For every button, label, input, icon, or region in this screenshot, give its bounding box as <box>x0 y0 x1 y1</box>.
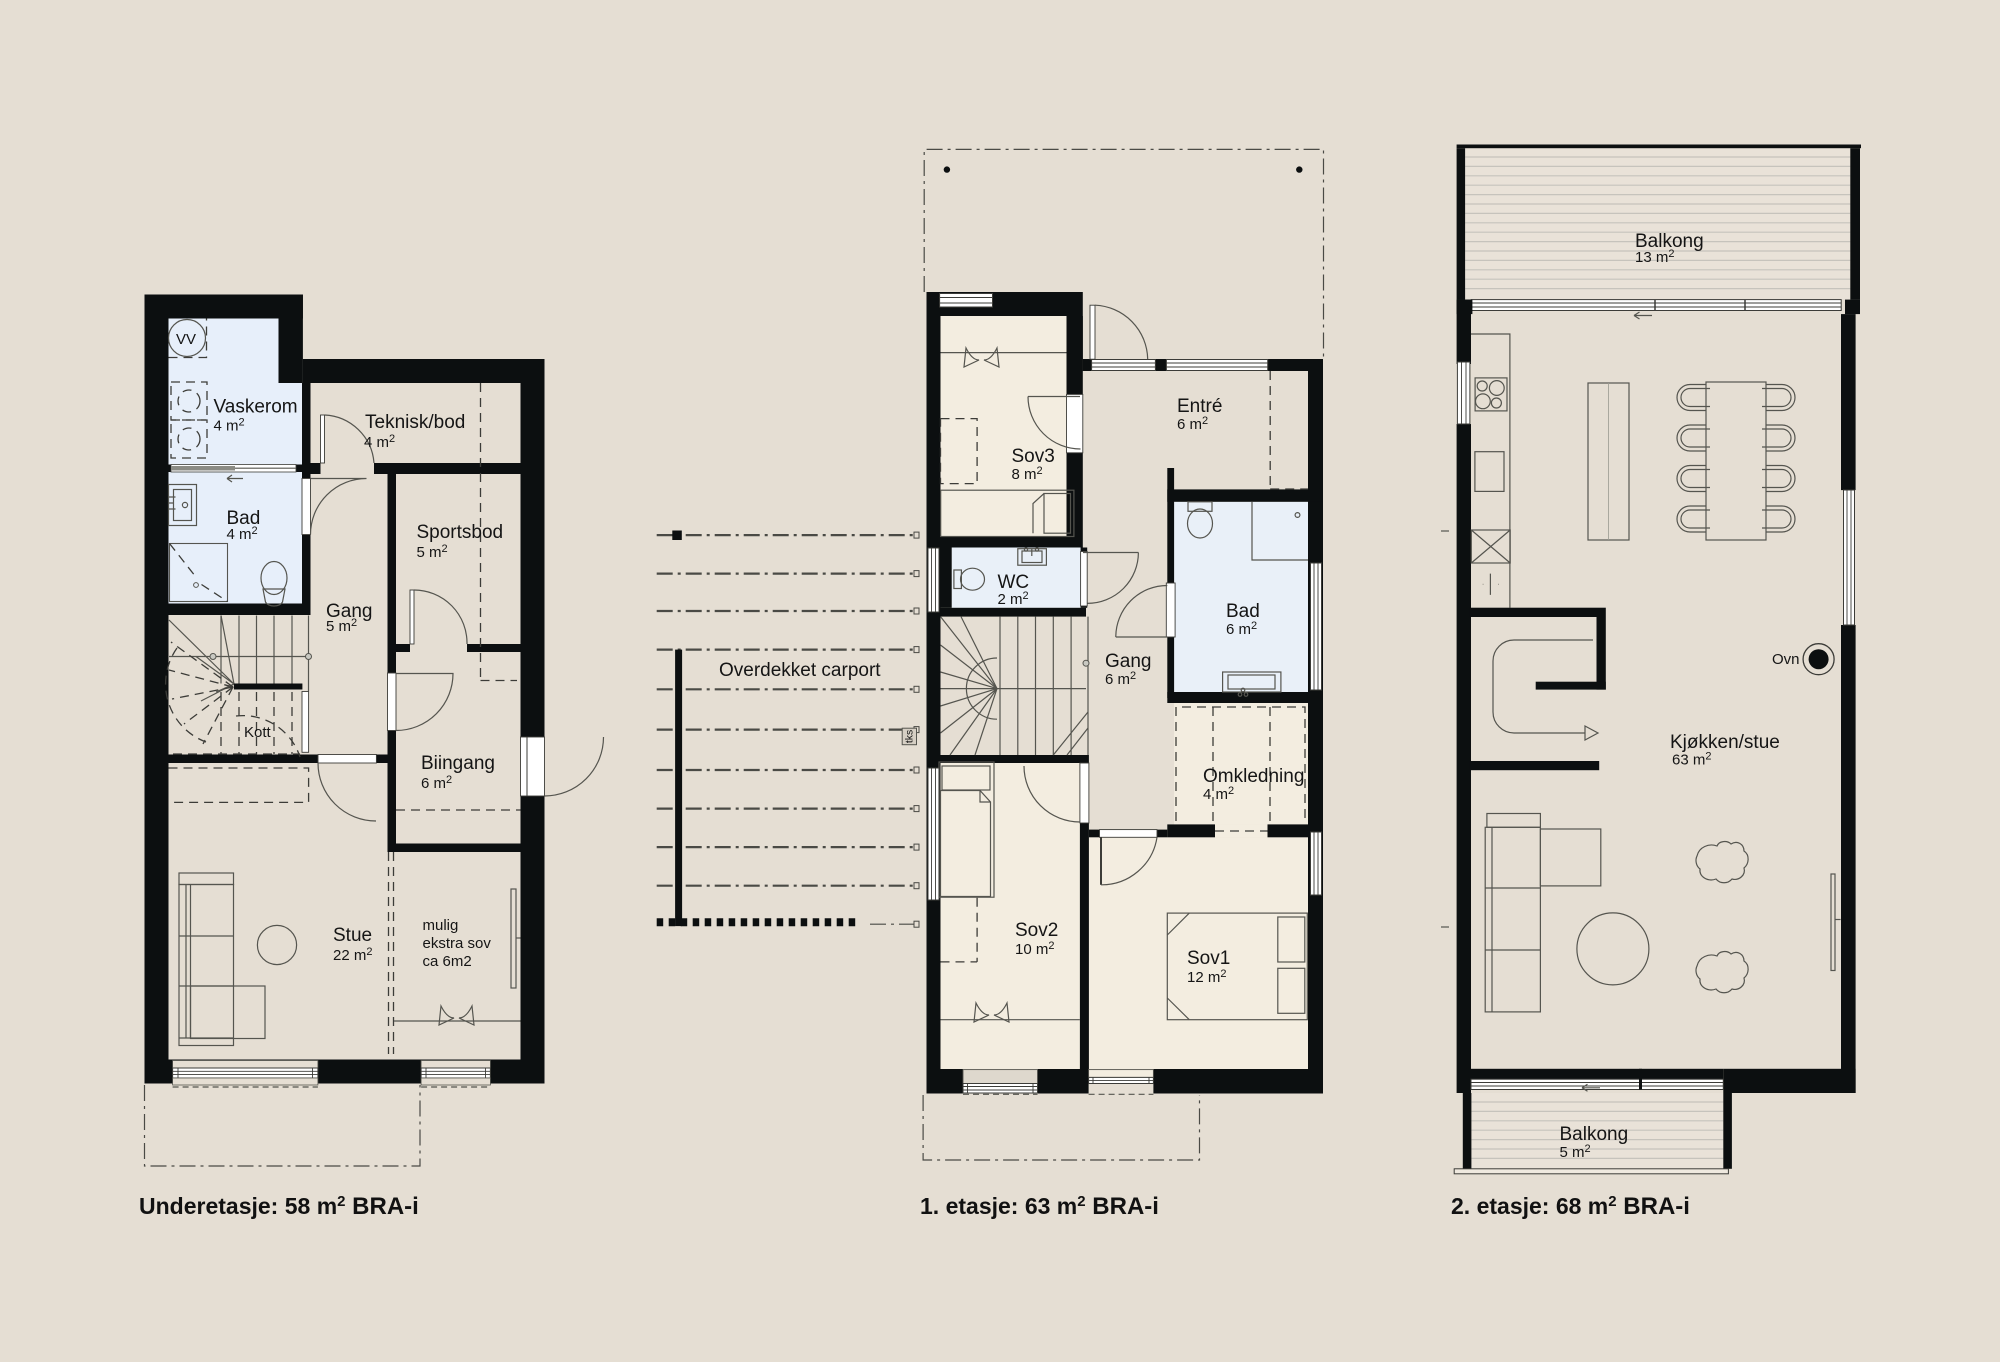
svg-text:Kjøkken/stue: Kjøkken/stue <box>1670 732 1780 753</box>
svg-text:ekstra sov: ekstra sov <box>423 935 492 952</box>
svg-text:Omkledning: Omkledning <box>1203 766 1304 787</box>
svg-text:Gang: Gang <box>1105 651 1151 672</box>
svg-text:Overdekket carport: Overdekket carport <box>719 660 881 681</box>
svg-text:mulig: mulig <box>423 917 459 934</box>
svg-text:Sov3: Sov3 <box>1012 446 1055 467</box>
svg-text:1. etasje: 63 m2 BRA-i: 1. etasje: 63 m2 BRA-i <box>920 1193 1159 1220</box>
svg-text:Kott: Kott <box>244 724 272 741</box>
svg-text:Biingang: Biingang <box>421 753 495 774</box>
svg-text:tks: tks <box>903 730 915 743</box>
svg-text:Vaskerom: Vaskerom <box>214 397 298 418</box>
svg-text:Sportsbod: Sportsbod <box>417 522 504 543</box>
svg-text:ca 6m2: ca 6m2 <box>423 953 472 970</box>
svg-text:Stue: Stue <box>333 925 372 946</box>
svg-text:Ovn: Ovn <box>1772 651 1800 668</box>
svg-text:2. etasje: 68 m2 BRA-i: 2. etasje: 68 m2 BRA-i <box>1451 1193 1690 1220</box>
svg-text:Sov2: Sov2 <box>1015 920 1058 941</box>
svg-text:Sov1: Sov1 <box>1187 948 1230 969</box>
svg-text:VV: VV <box>176 331 196 348</box>
svg-text:Entré: Entré <box>1177 396 1222 417</box>
svg-text:Teknisk/bod: Teknisk/bod <box>365 412 465 433</box>
svg-text:Balkong: Balkong <box>1560 1124 1629 1145</box>
svg-text:Bad: Bad <box>1226 601 1260 622</box>
svg-text:Underetasje: 58 m2 BRA-i: Underetasje: 58 m2 BRA-i <box>139 1193 419 1220</box>
